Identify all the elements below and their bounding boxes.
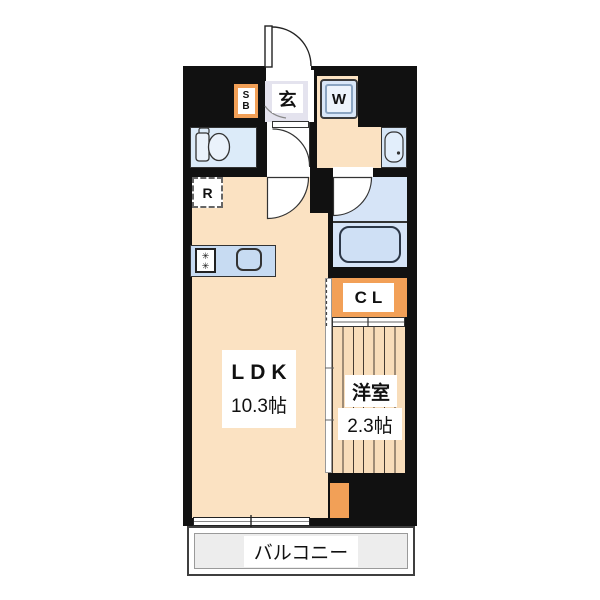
washing-machine-label: W	[325, 84, 353, 114]
refrigerator-label: R	[202, 185, 212, 201]
western-room-label: 洋室	[345, 375, 397, 407]
sink-icon	[236, 248, 262, 271]
shoe-box-label-line1: S	[243, 90, 250, 101]
bathroom-divider	[333, 221, 407, 223]
shoe-box-label: S B	[238, 88, 255, 114]
hallway	[267, 122, 310, 167]
stove-icon: ✳ ✳	[195, 248, 216, 273]
ldk-room	[192, 177, 310, 518]
floor-plan: S B W R ✳ ✳ CL バルコニー	[0, 0, 600, 600]
genkan-label: 玄	[272, 84, 303, 113]
bathroom-doorway	[333, 167, 373, 177]
window-icon	[193, 517, 310, 526]
closet: CL	[330, 278, 407, 317]
wall-divider	[308, 70, 314, 122]
entrance-doorway	[266, 66, 311, 82]
washing-machine-pan-icon: W	[320, 79, 358, 119]
balcony-label: バルコニー	[244, 536, 359, 567]
washroom-area-lower	[317, 127, 381, 168]
balcony-floor: バルコニー	[194, 533, 408, 569]
western-room-size-label: 2.3帖	[338, 408, 402, 440]
stove-burner-icon: ✳	[202, 261, 210, 271]
sliding-partition-icon	[325, 278, 332, 473]
closet-label: CL	[343, 283, 394, 312]
bathtub-icon	[339, 226, 401, 263]
shoe-box-label-line2: B	[242, 101, 249, 112]
shoe-box: S B	[234, 84, 258, 118]
hallway-door-leaf-icon	[272, 121, 309, 128]
stove-burner-icon: ✳	[202, 251, 210, 261]
toilet-room	[190, 127, 257, 168]
ldk-doorway	[267, 167, 310, 177]
sliding-door-track-icon	[332, 317, 405, 327]
accent-block	[330, 483, 349, 518]
refrigerator-space: R	[192, 177, 223, 208]
washbasin-area	[381, 127, 407, 168]
ldk-name-label: LDK	[231, 361, 292, 385]
ldk-label: LDK 10.3帖	[222, 350, 296, 428]
entrance-door-arc-icon	[265, 26, 311, 67]
ldk-size-label: 10.3帖	[231, 391, 287, 418]
balcony: バルコニー	[187, 526, 415, 576]
